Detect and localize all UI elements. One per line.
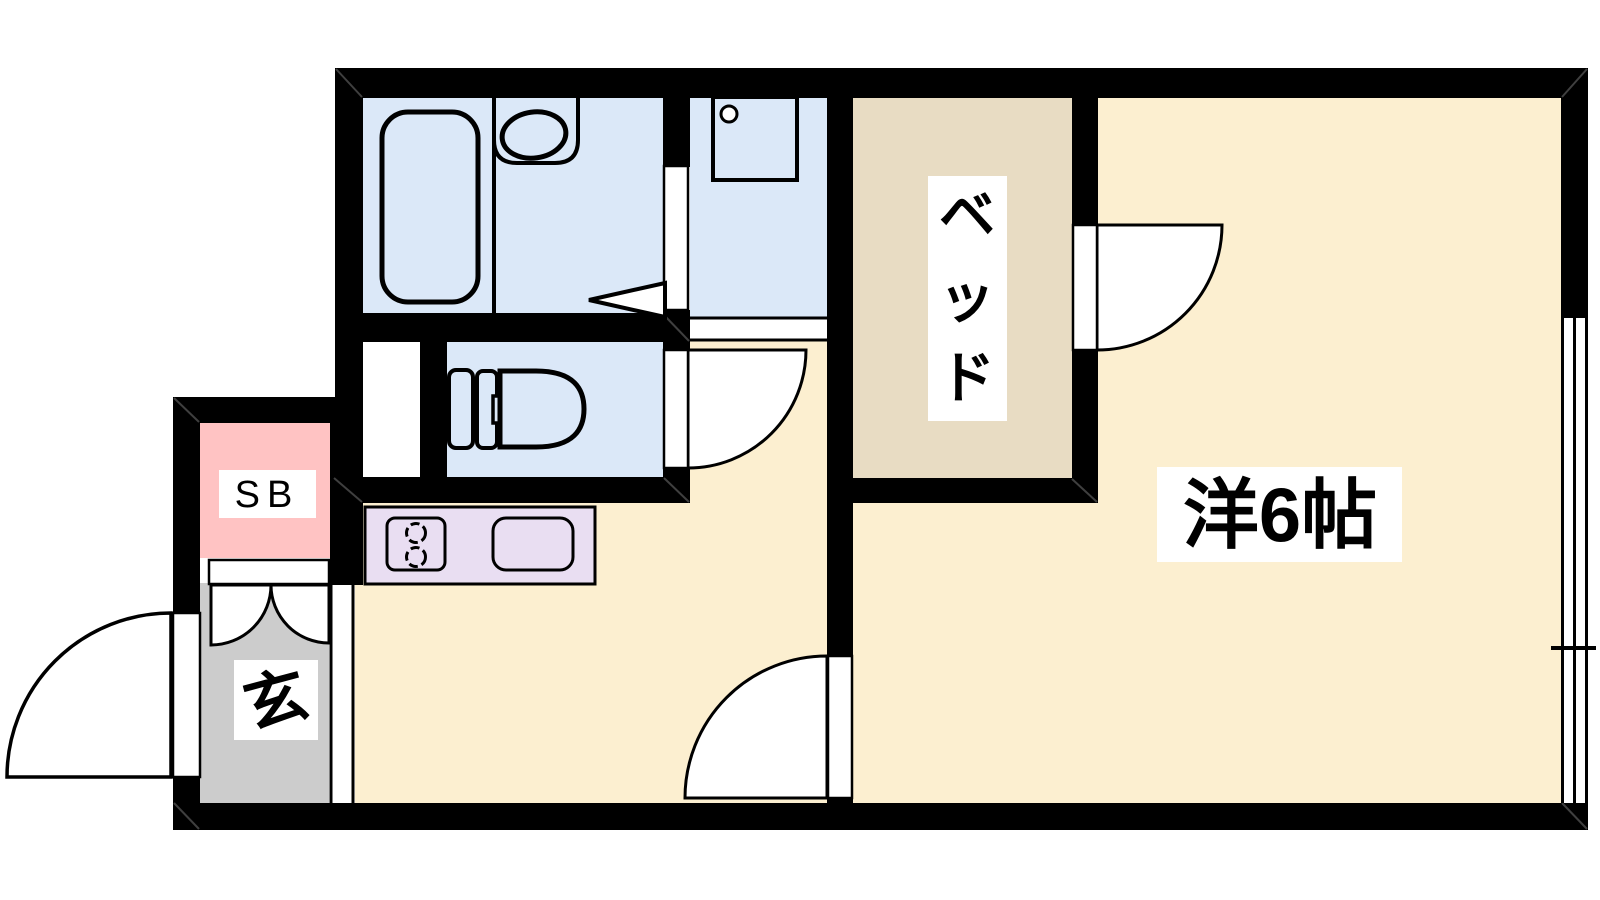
toilet-tank [449, 370, 473, 448]
toilet-door-panel [664, 350, 688, 468]
wall-bed-right-lower [1072, 348, 1098, 478]
wall-washroom-right-b [663, 310, 690, 352]
washroom-door-panel [664, 166, 688, 310]
main-room-label: 洋6帖 [1183, 474, 1377, 559]
wall-entry-left-upper [173, 397, 200, 613]
wall-bed-bottom [853, 478, 1098, 503]
bed-label-char-2: ッ [939, 267, 995, 330]
floorplan-page: SB 玄 ベ ッ ド 洋6帖 [0, 0, 1600, 900]
wall-right-upper [1561, 68, 1588, 318]
entrance-door-swing [7, 613, 171, 777]
wall-washroom-right-a [663, 95, 690, 167]
wall-bath-bottom [335, 313, 690, 342]
wall-top [335, 68, 1588, 98]
wall-niche-right [420, 342, 447, 477]
entrance-step-strip [331, 585, 353, 803]
wall-toilet-bottom [363, 477, 690, 503]
shoebox-door-band [209, 560, 329, 584]
window-center-tick [1551, 646, 1596, 650]
bed-alcove-door-panel [1073, 225, 1097, 350]
main-room-door-panel [828, 656, 852, 798]
kitchen-sink [493, 518, 573, 570]
entrance-door-panel [173, 613, 200, 777]
wall-bottom [173, 803, 1588, 830]
toilet-bowl [500, 371, 584, 447]
wall-center-divider [827, 68, 853, 656]
wall-washroom-right-c [663, 466, 690, 503]
step-strip [332, 585, 352, 803]
washing-machine-drain [721, 106, 737, 122]
stove-unit [387, 518, 445, 570]
room-fills [200, 95, 1562, 803]
wall-jog [173, 397, 363, 423]
bed-label-char-3: ド [939, 347, 995, 410]
laundry-opening [690, 318, 827, 340]
wall-left-main [335, 68, 363, 423]
laundry-opening-gap [690, 318, 827, 339]
floorplan-svg: SB 玄 ベ ッ ド 洋6帖 [0, 0, 1600, 900]
shoebox-label: SB [235, 474, 300, 516]
storage-niche [363, 342, 420, 477]
bed-label-char-1: ベ [939, 184, 995, 247]
wall-entry-left-lower [173, 777, 200, 807]
wall-bed-right-upper [1072, 98, 1098, 225]
wall-shoebox-right [330, 423, 363, 585]
